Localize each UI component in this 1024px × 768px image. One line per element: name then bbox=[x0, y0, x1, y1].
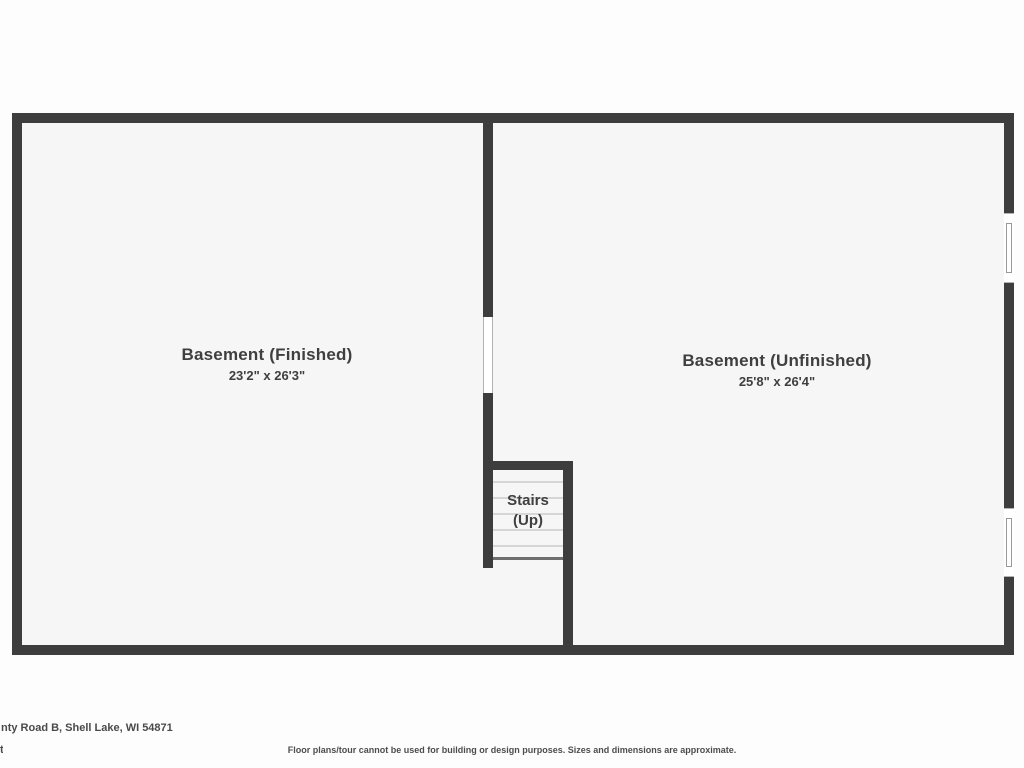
window-pane bbox=[1006, 518, 1012, 567]
window-pane bbox=[1006, 223, 1012, 273]
room-dimensions: 25'8" x 26'4" bbox=[632, 374, 922, 389]
divider-wall-lower bbox=[483, 393, 493, 568]
floor-plan: Basement (Finished) 23'2" x 26'3" Baseme… bbox=[12, 113, 1014, 655]
room-name: Basement (Finished) bbox=[132, 345, 402, 365]
door-opening bbox=[483, 317, 493, 393]
window-upper bbox=[1004, 213, 1014, 283]
stair-bottom-edge bbox=[493, 557, 563, 560]
property-address: nty Road B, Shell Lake, WI 54871 bbox=[1, 722, 173, 734]
stairs-label-line1: Stairs bbox=[478, 491, 578, 511]
room-label-unfinished: Basement (Unfinished) 25'8" x 26'4" bbox=[632, 351, 922, 389]
floor-plan-page: Basement (Finished) 23'2" x 26'3" Baseme… bbox=[0, 0, 1024, 768]
room-label-finished: Basement (Finished) 23'2" x 26'3" bbox=[132, 345, 402, 383]
stair-tread bbox=[493, 545, 563, 547]
stairs-label-line2: (Up) bbox=[478, 511, 578, 531]
divider-wall-upper bbox=[483, 123, 493, 317]
window-lower bbox=[1004, 508, 1014, 577]
disclaimer-text: Floor plans/tour cannot be used for buil… bbox=[0, 745, 1024, 755]
stairs-label: Stairs (Up) bbox=[478, 491, 578, 531]
room-dimensions: 23'2" x 26'3" bbox=[132, 368, 402, 383]
stair-tread bbox=[493, 481, 563, 483]
room-name: Basement (Unfinished) bbox=[632, 351, 922, 371]
stairs-top-wall bbox=[483, 461, 573, 470]
